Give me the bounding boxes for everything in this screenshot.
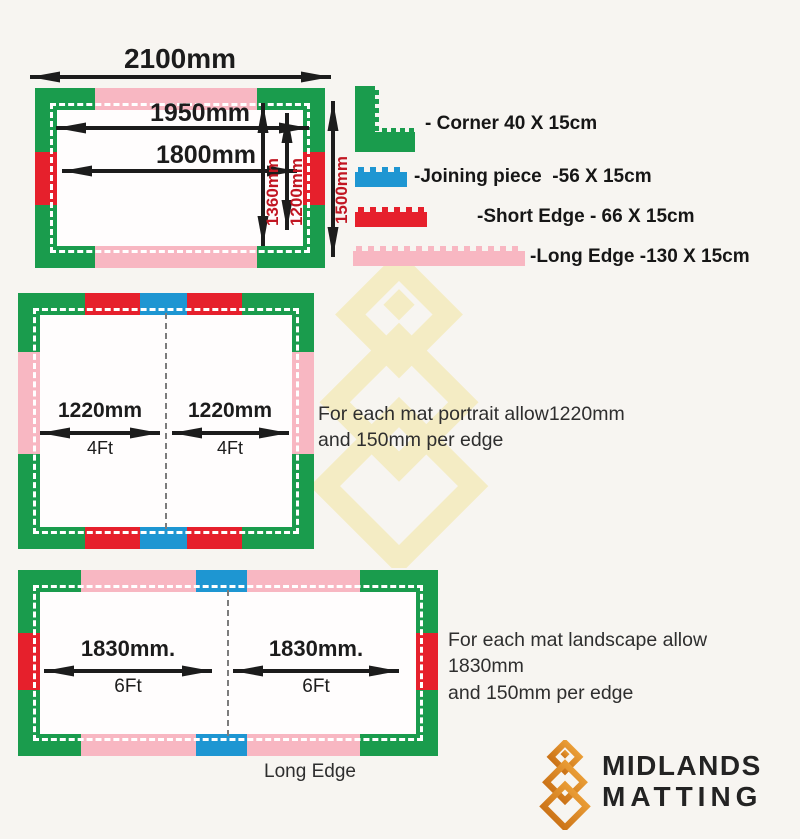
diagram-landscape-mats: 1830mm. 6Ft 1830mm. 6Ft	[18, 570, 438, 756]
short-edge-icon	[355, 212, 427, 227]
portrait-note-line2: and 150mm per edge	[318, 427, 648, 453]
teeth	[356, 246, 522, 251]
brand-logo: MIDLANDS MATTING	[536, 738, 786, 833]
brand-name-line1: MIDLANDS	[602, 750, 762, 781]
joining-piece-icon	[355, 172, 407, 187]
brand-logo-text: MIDLANDS MATTING	[602, 750, 762, 812]
mat2-ft-label: 6Ft	[236, 677, 396, 697]
teeth	[358, 207, 424, 212]
long-edge-icon	[353, 251, 525, 266]
landscape-note: For each mat landscape allow 1830mm and …	[448, 627, 788, 706]
mat2-dim-label: 1830mm.	[236, 637, 396, 660]
legend-label-short-edge: -Short Edge - 66 X 15cm	[477, 206, 695, 228]
portrait-note-line1: For each mat portrait allow1220mm	[318, 401, 648, 427]
mat1-dim-label: 1220mm	[38, 400, 162, 422]
legend-label-joining: -Joining piece -56 X 15cm	[414, 166, 652, 188]
brand-name-line2: MATTING	[602, 781, 762, 812]
long-edge-caption: Long Edge	[240, 761, 380, 783]
infographic-canvas: 2100mm	[0, 0, 800, 839]
diagram-portrait-mats: 1220mm 4Ft 1220mm 4Ft	[18, 293, 314, 549]
mat1-ft-label: 4Ft	[38, 439, 162, 458]
brand-logo-icon	[536, 740, 594, 830]
legend: - Corner 40 X 15cm -Joining piece -56 X …	[0, 0, 800, 290]
mat2-ft-label: 4Ft	[168, 439, 292, 458]
mat1-ft-label: 6Ft	[48, 677, 208, 697]
mat2-dim-label: 1220mm	[168, 400, 292, 422]
dimension-arrows	[18, 570, 438, 756]
teeth	[358, 167, 404, 172]
legend-label-long-edge: -Long Edge -130 X 15cm	[530, 246, 750, 268]
landscape-note-line1: For each mat landscape allow 1830mm	[448, 627, 788, 680]
legend-label-corner: - Corner 40 X 15cm	[425, 113, 597, 135]
corner-piece-icon	[355, 86, 415, 152]
portrait-note: For each mat portrait allow1220mm and 15…	[318, 401, 648, 454]
mat1-dim-label: 1830mm.	[48, 637, 208, 660]
landscape-note-line2: and 150mm per edge	[448, 680, 788, 706]
